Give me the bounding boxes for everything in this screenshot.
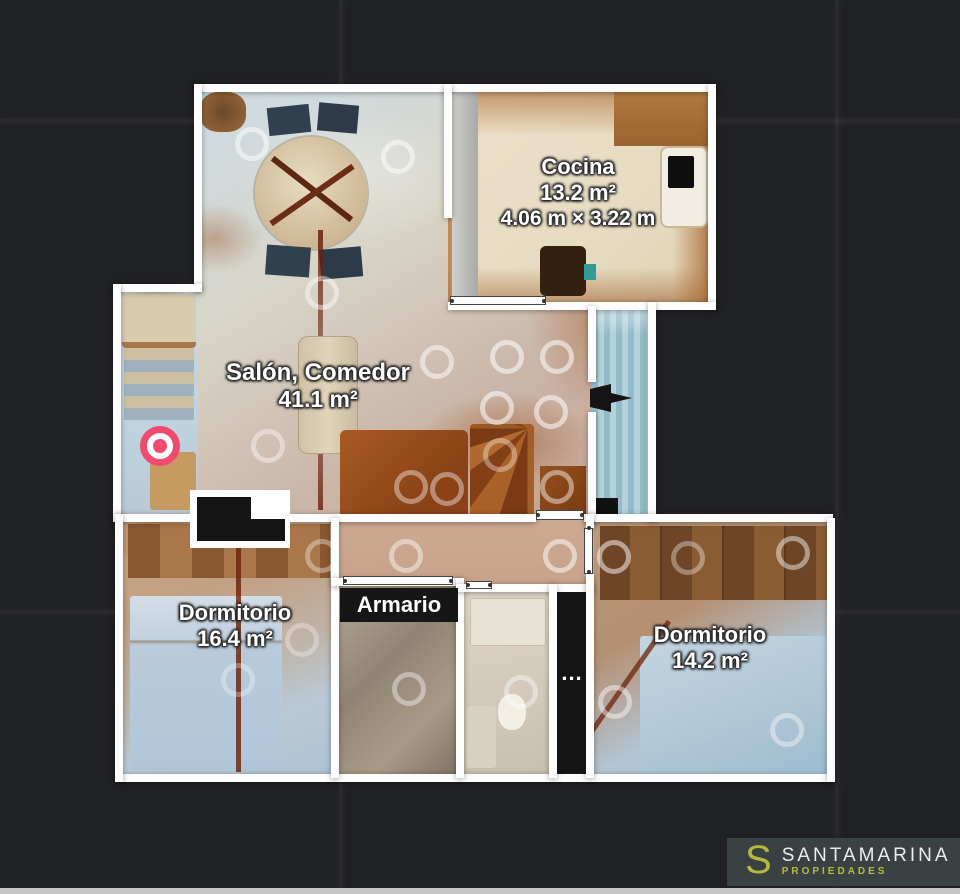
scan-point-icon[interactable] (543, 539, 577, 573)
furniture-corner-cabinet (200, 92, 246, 132)
room-terrace-floor (592, 306, 652, 518)
room-name: Dormitorio (605, 622, 815, 648)
furniture-sofa (122, 294, 196, 348)
furniture-bath-counter (470, 598, 546, 646)
scan-point-icon[interactable] (381, 140, 415, 174)
wall (194, 84, 716, 92)
scan-point-icon[interactable] (235, 127, 269, 161)
wall (113, 284, 202, 292)
scan-point-icon[interactable] (221, 663, 255, 697)
brand-name: SANTAMARINA (782, 846, 951, 866)
room-label-cocina: Cocina 13.2 m² 4.06 m × 3.22 m (458, 154, 698, 232)
furniture-sink (540, 246, 586, 296)
scan-point-icon[interactable] (770, 713, 804, 747)
brand-monogram: S (745, 840, 772, 880)
room-label-salon: Salón, Comedor 41.1 m² (188, 360, 448, 412)
scan-point-icon[interactable] (598, 685, 632, 719)
room-name: Armario (357, 592, 441, 618)
furniture-shelf (124, 348, 194, 420)
viewer-stage: Cocina 13.2 m² 4.06 m × 3.22 m Salón, Co… (0, 0, 960, 894)
room-name: Salón, Comedor (188, 360, 448, 386)
brand-badge: S SANTAMARINA PROPIEDADES (727, 838, 960, 886)
floor-plan[interactable]: Cocina 13.2 m² 4.06 m × 3.22 m Salón, Co… (0, 0, 960, 894)
brand-tagline: PROPIEDADES (782, 866, 951, 878)
room-name: Cocina (458, 154, 698, 180)
scan-point-icon[interactable] (540, 340, 574, 374)
room-label-truncated: ... (556, 660, 588, 686)
scan-point-icon[interactable] (534, 395, 568, 429)
wall (827, 518, 835, 782)
room-area: 41.1 m² (188, 386, 448, 412)
marker-dot-icon (153, 439, 167, 453)
scan-point-icon[interactable] (483, 438, 517, 472)
scan-point-icon[interactable] (430, 472, 464, 506)
room-name: Dormitorio (130, 600, 340, 626)
furniture-shower (466, 706, 496, 768)
page-edge-strip (0, 888, 960, 894)
scan-point-icon[interactable] (305, 539, 339, 573)
furniture-chair (317, 102, 359, 133)
furniture-kitchen-counter (614, 90, 708, 146)
current-position-marker[interactable] (140, 426, 180, 466)
scan-point-icon[interactable] (597, 540, 631, 574)
door (343, 576, 453, 585)
scan-point-icon[interactable] (394, 470, 428, 504)
scan-point-icon[interactable] (389, 539, 423, 573)
wall (588, 306, 596, 382)
wall (113, 284, 121, 522)
wall (708, 84, 716, 310)
room-label-dormitorio1: Dormitorio 16.4 m² (130, 600, 340, 652)
room-area: 14.2 m² (605, 648, 815, 674)
scan-point-icon[interactable] (392, 672, 426, 706)
room-area: 13.2 m² (458, 180, 698, 206)
wall (115, 514, 123, 782)
unscanned-zone (197, 497, 251, 541)
scan-point-icon[interactable] (251, 429, 285, 463)
door (536, 510, 584, 520)
furniture-chair (267, 104, 312, 136)
scan-point-icon[interactable] (504, 675, 538, 709)
unscanned-zone (249, 519, 285, 541)
furniture-kitchen-item (584, 264, 596, 280)
wall (194, 84, 202, 292)
furniture-chair (265, 245, 311, 278)
room-label-armario: Armario (340, 588, 458, 622)
room-label-dormitorio2: Dormitorio 14.2 m² (605, 622, 815, 674)
scan-point-icon[interactable] (480, 391, 514, 425)
door (584, 528, 593, 574)
wall (444, 84, 452, 218)
furniture-chair (319, 246, 363, 280)
door (450, 296, 546, 305)
wall (113, 514, 536, 522)
scan-point-icon[interactable] (540, 470, 574, 504)
scan-point-icon[interactable] (671, 541, 705, 575)
room-dimensions: 4.06 m × 3.22 m (458, 206, 698, 232)
scan-point-icon[interactable] (490, 340, 524, 374)
door (466, 581, 492, 589)
scan-point-icon[interactable] (776, 536, 810, 570)
room-area: 16.4 m² (130, 626, 340, 652)
wall (584, 514, 833, 522)
wall (588, 412, 596, 522)
wall (115, 774, 835, 782)
scan-point-icon[interactable] (305, 276, 339, 310)
wall (648, 302, 656, 522)
